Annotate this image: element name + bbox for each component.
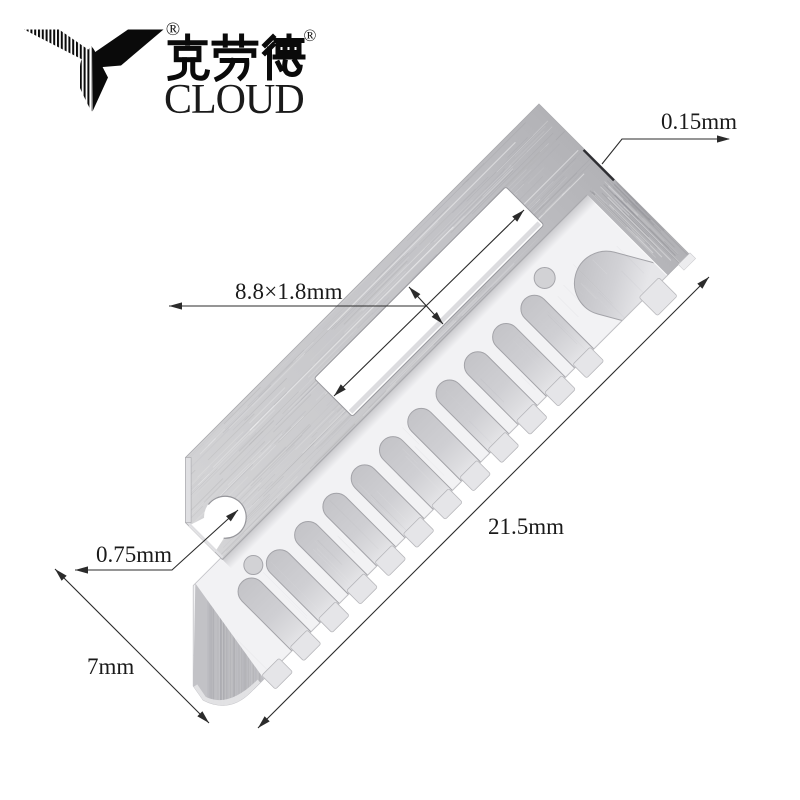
svg-text:7mm: 7mm [87, 654, 134, 679]
svg-text:CLOUD: CLOUD [164, 77, 304, 123]
svg-text:8.8×1.8mm: 8.8×1.8mm [235, 279, 343, 304]
svg-text:0.75mm: 0.75mm [96, 542, 172, 567]
svg-text:®: ® [304, 26, 317, 45]
svg-text:0.15mm: 0.15mm [661, 109, 737, 134]
svg-text:21.5mm: 21.5mm [488, 514, 564, 539]
svg-text:®: ® [166, 19, 180, 40]
